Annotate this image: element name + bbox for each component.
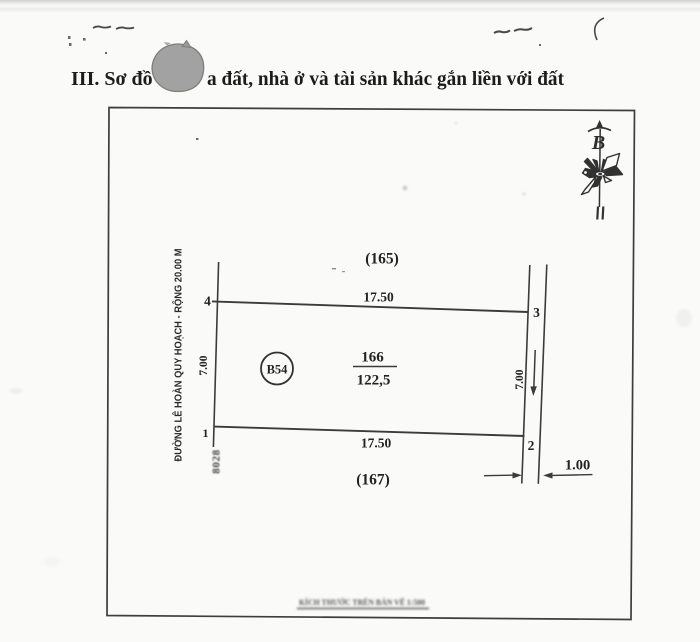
- svg-text:1: 1: [203, 426, 209, 440]
- svg-text:4: 4: [204, 294, 211, 309]
- svg-text:KÍCH THƯỚC TRÊN BẢN VẼ 1:500: KÍCH THƯỚC TRÊN BẢN VẼ 1:500: [299, 597, 425, 607]
- svg-text:7.00: 7.00: [198, 355, 210, 375]
- svg-text:(167): (167): [356, 472, 390, 489]
- svg-text:B: B: [591, 132, 605, 154]
- svg-text:B54: B54: [267, 363, 289, 377]
- svg-text:122,5: 122,5: [357, 373, 391, 389]
- svg-text:166: 166: [361, 350, 384, 366]
- svg-text:7.00: 7.00: [514, 369, 526, 389]
- svg-text:17.50: 17.50: [363, 290, 394, 305]
- svg-text:(165): (165): [365, 251, 399, 268]
- svg-text:ĐƯỜNG LÊ HOÀN QUY HOẠCH - RỘNG: ĐƯỜNG LÊ HOÀN QUY HOẠCH - RỘNG 20.00 M: [173, 249, 185, 462]
- svg-text:3: 3: [533, 305, 540, 320]
- svg-text:17.50: 17.50: [361, 436, 392, 451]
- svg-text:8028: 8028: [211, 449, 223, 473]
- svg-text:a đất, nhà ở và tài sản khác g: a đất, nhà ở và tài sản khác gắn liền vớ…: [207, 68, 564, 90]
- svg-text:1.00: 1.00: [565, 458, 590, 474]
- svg-text:2: 2: [528, 438, 535, 453]
